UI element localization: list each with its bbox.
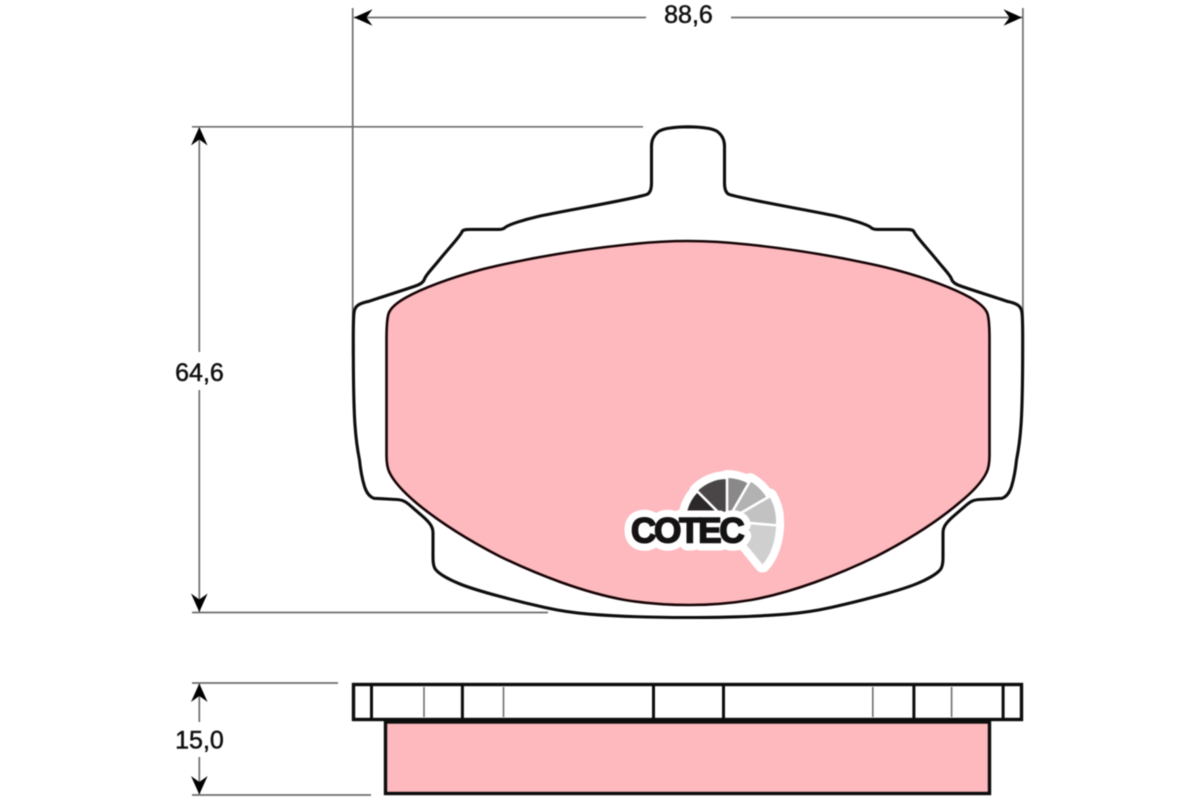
- svg-text:88,6: 88,6: [664, 1, 713, 29]
- svg-text:COTEC: COTEC: [631, 512, 744, 551]
- svg-text:64,6: 64,6: [175, 359, 224, 387]
- svg-text:15,0: 15,0: [175, 727, 224, 755]
